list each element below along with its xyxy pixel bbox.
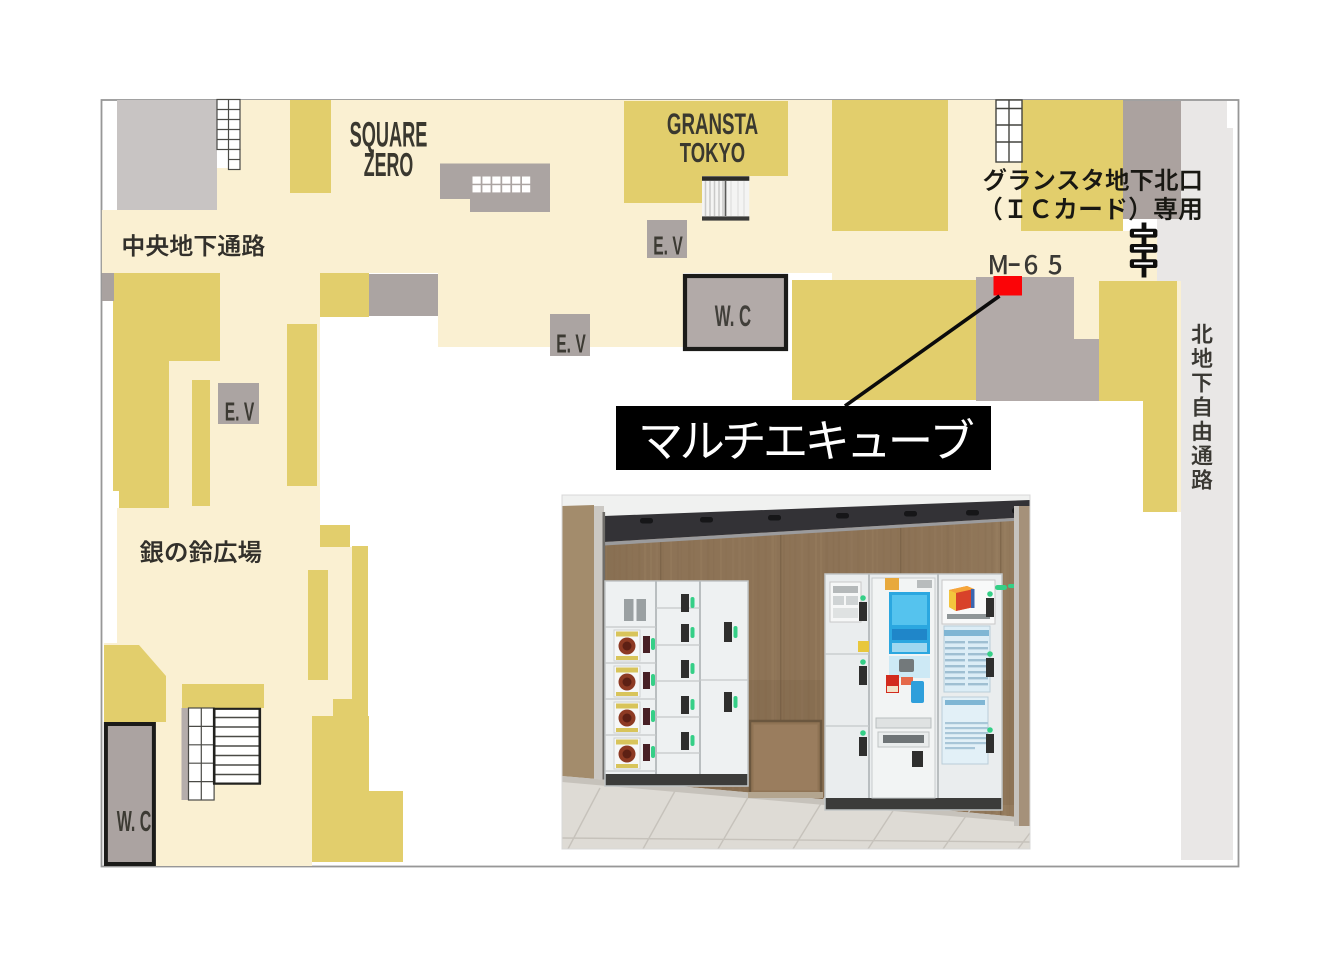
svg-text:GRANSTA: GRANSTA — [667, 108, 758, 142]
svg-text:ZERO: ZERO — [364, 146, 413, 183]
svg-text:TOKYO: TOKYO — [680, 138, 745, 169]
svg-text:E. V: E. V — [556, 329, 586, 358]
svg-text:E. V: E. V — [653, 231, 683, 260]
svg-text:W. C: W. C — [117, 805, 152, 837]
svg-text:E. V: E. V — [225, 397, 255, 426]
svg-text:W. C: W. C — [715, 300, 751, 333]
